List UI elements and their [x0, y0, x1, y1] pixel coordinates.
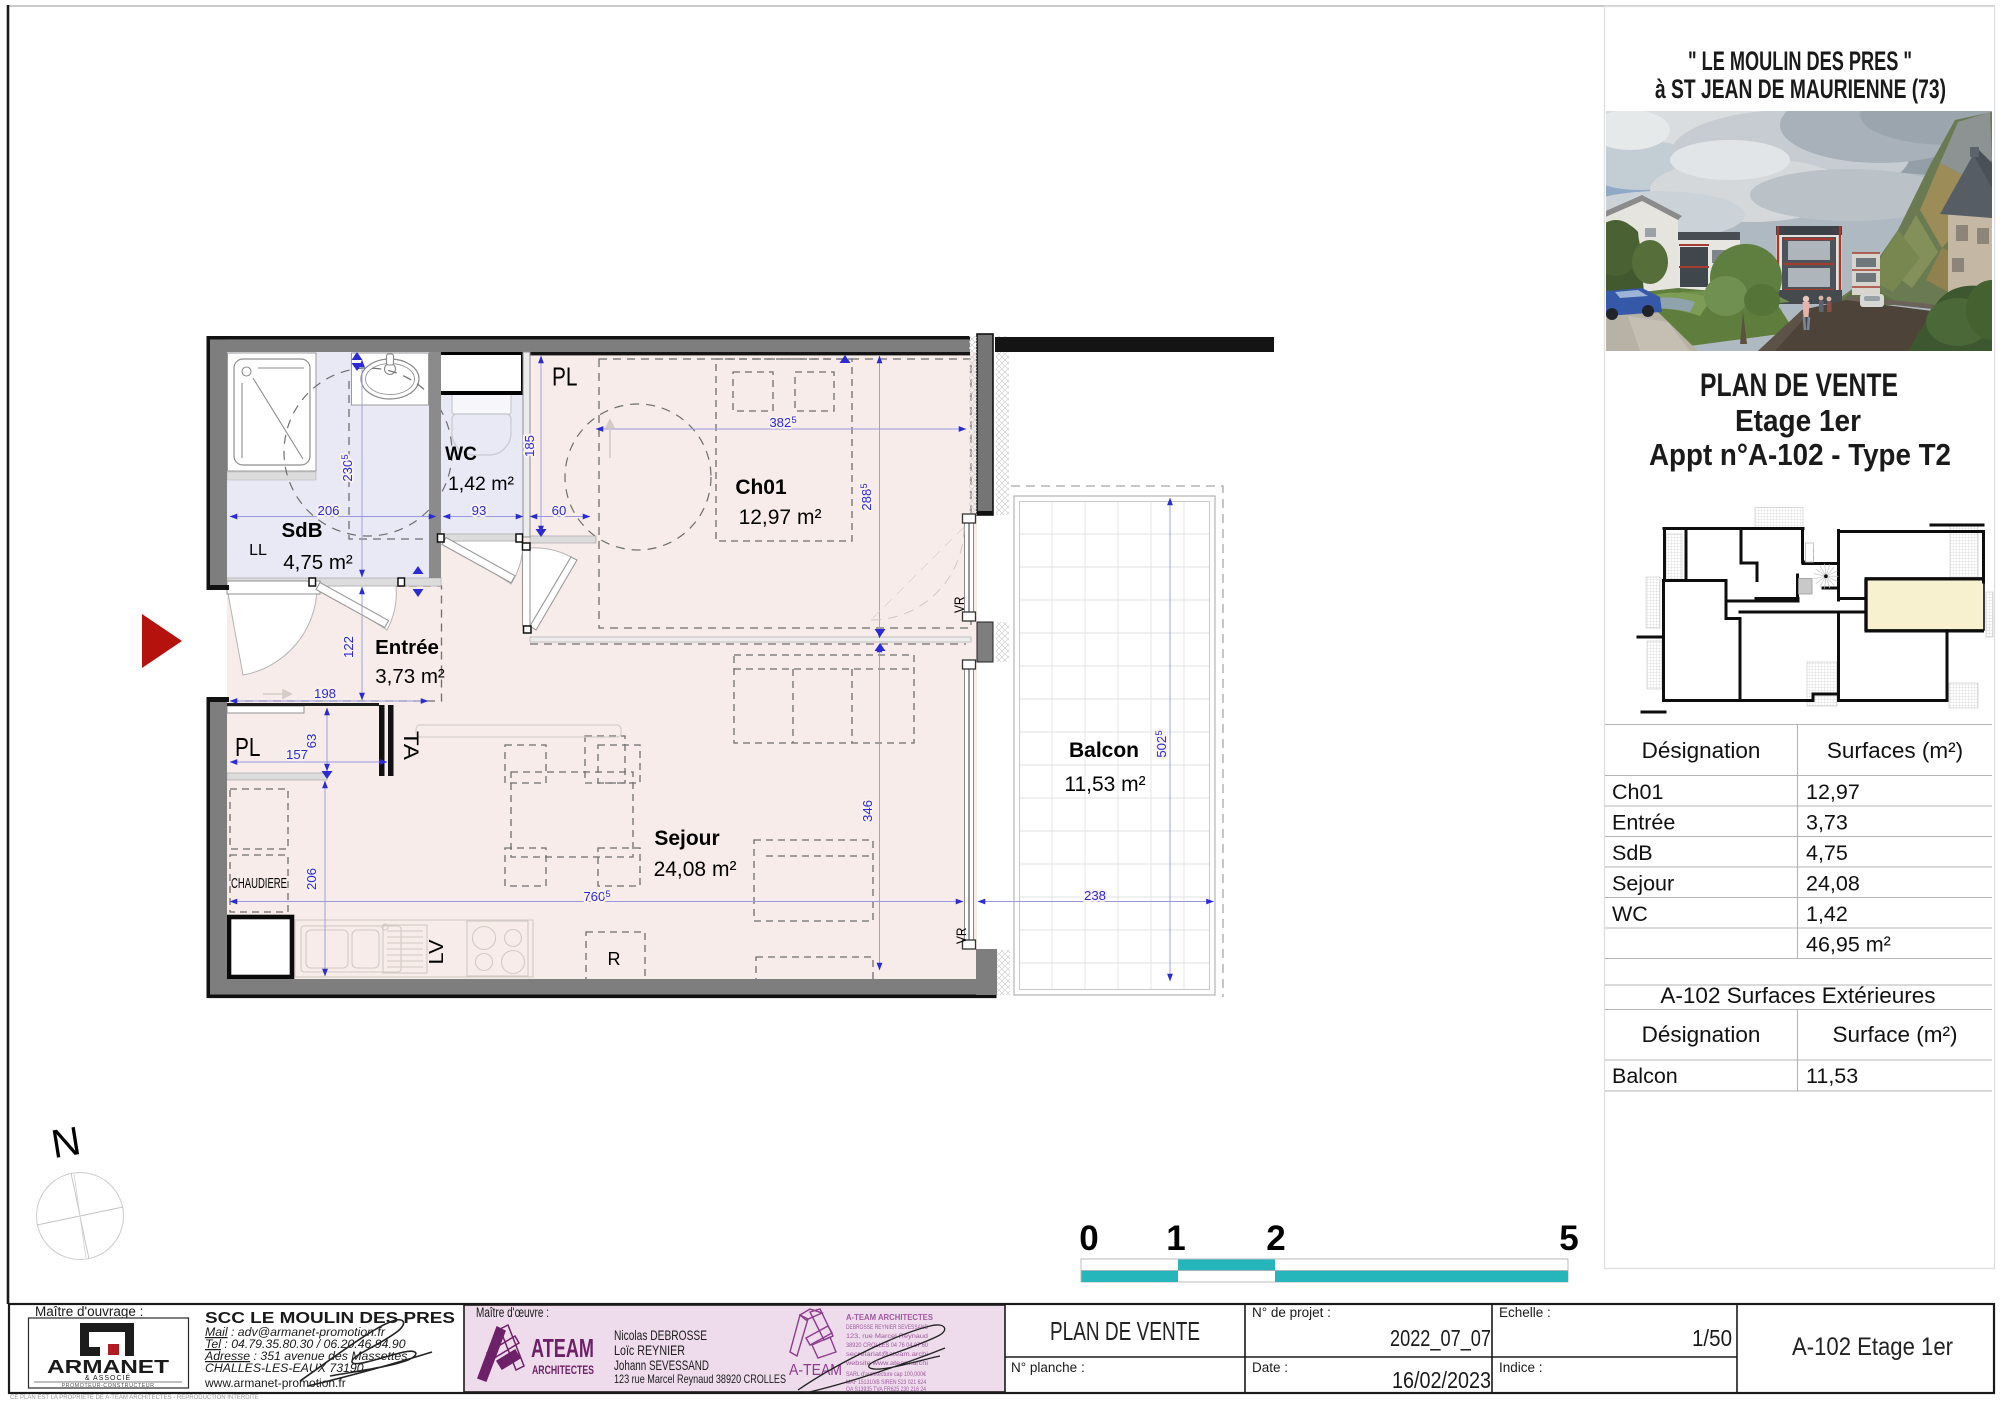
svg-text:206: 206 [304, 868, 319, 890]
svg-text:Ch01: Ch01 [735, 476, 787, 499]
svg-text:63: 63 [304, 734, 319, 749]
svg-text:WC: WC [1612, 902, 1648, 926]
svg-text:123 rue Marcel Reynaud 38920 C: 123 rue Marcel Reynaud 38920 CROLLES [614, 1372, 786, 1386]
svg-text:Maître d'œuvre :: Maître d'œuvre : [476, 1305, 549, 1320]
svg-text:SARL d'architecture cap 100,00: SARL d'architecture cap 100,000€ [846, 1371, 926, 1378]
svg-text:238: 238 [1084, 888, 1106, 903]
svg-text:24,08 m²: 24,08 m² [654, 858, 737, 881]
svg-text:ARCHITECTES: ARCHITECTES [532, 1363, 594, 1377]
svg-text:4,75: 4,75 [1806, 841, 1848, 865]
svg-text:Appt n°A-102 - Type T2: Appt n°A-102 - Type T2 [1649, 437, 1951, 472]
svg-text:Surface (m²): Surface (m²) [1832, 1022, 1957, 1047]
svg-text:Johann SEVESSAND: Johann SEVESSAND [614, 1358, 709, 1373]
svg-text:185: 185 [522, 435, 537, 457]
svg-text:A-102 Etage 1er: A-102 Etage 1er [1792, 1333, 1953, 1361]
svg-text:WC: WC [445, 444, 477, 465]
svg-text:A-102 Surfaces Extérieures: A-102 Surfaces Extérieures [1660, 983, 1935, 1008]
svg-text:2022_07_07: 2022_07_07 [1390, 1325, 1491, 1351]
svg-text:0: 0 [1079, 1219, 1098, 1258]
svg-text:12,97 m²: 12,97 m² [739, 506, 822, 529]
svg-text:ATEAM: ATEAM [531, 1333, 594, 1363]
svg-text:Désignation: Désignation [1642, 1022, 1761, 1047]
svg-text:N° planche :: N° planche : [1011, 1360, 1085, 1375]
svg-text:Sejour: Sejour [1612, 872, 1674, 896]
svg-text:198: 198 [314, 686, 336, 701]
svg-text:5: 5 [1559, 1219, 1578, 1258]
svg-text:PROMOTEUR-CONSTRUCTEUR: PROMOTEUR-CONSTRUCTEUR [61, 1383, 154, 1389]
svg-text:PL: PL [552, 362, 578, 392]
svg-text:& ASSOCIÉ: & ASSOCIÉ [85, 1373, 131, 1382]
svg-text:3,73 m²: 3,73 m² [375, 665, 445, 688]
svg-text:VR: VR [951, 597, 967, 614]
svg-text:123, rue Marcel Reynaud: 123, rue Marcel Reynaud [846, 1333, 928, 1340]
svg-text:A-TEAM: A-TEAM [789, 1362, 842, 1379]
svg-text:Loïc REYNIER: Loïc REYNIER [614, 1343, 685, 1358]
svg-text:A-TEAM ARCHITECTES: A-TEAM ARCHITECTES [846, 1313, 933, 1322]
svg-text:MAF 151310/B SIREN 523 021 624: MAF 151310/B SIREN 523 021 624 [846, 1379, 926, 1386]
svg-text:11,53 m²: 11,53 m² [1064, 773, 1145, 796]
svg-text:OA S13935 TVA FR625 230 216 24: OA S13935 TVA FR625 230 216 24 [846, 1386, 926, 1393]
svg-text:4,75 m²: 4,75 m² [283, 551, 353, 574]
svg-text:CE PLAN EST LA PROPRIETE DE A-: CE PLAN EST LA PROPRIETE DE A-TEAM ARCHI… [10, 1395, 259, 1401]
svg-text:Sejour: Sejour [654, 827, 719, 850]
svg-text:206: 206 [317, 503, 339, 518]
svg-text:PLAN DE VENTE: PLAN DE VENTE [1050, 1316, 1200, 1346]
svg-text:24,08: 24,08 [1806, 872, 1860, 896]
svg-text:PLAN DE VENTE: PLAN DE VENTE [1700, 367, 1898, 403]
svg-text:1,42 m²: 1,42 m² [448, 473, 515, 495]
svg-text:16/02/2023: 16/02/2023 [1392, 1367, 1491, 1393]
svg-text:Entrée: Entrée [375, 636, 439, 659]
svg-text:Maître d'ouvrage :: Maître d'ouvrage : [35, 1304, 143, 1319]
svg-text:Entrée: Entrée [1612, 811, 1675, 835]
svg-text:" LE MOULIN DES PRES ": " LE MOULIN DES PRES " [1688, 46, 1912, 76]
svg-text:Echelle :: Echelle : [1499, 1305, 1551, 1320]
svg-text:LL: LL [249, 542, 267, 559]
svg-text:SdB: SdB [1612, 841, 1653, 865]
svg-text:1/50: 1/50 [1692, 1325, 1732, 1351]
svg-text:LV: LV [426, 939, 448, 965]
svg-text:Surfaces (m²): Surfaces (m²) [1827, 738, 1963, 763]
svg-text:Désignation: Désignation [1642, 738, 1761, 763]
svg-text:SdB: SdB [282, 519, 323, 542]
svg-text:website www.ateam.archi: website www.ateam.archi [845, 1360, 929, 1367]
svg-text:122: 122 [341, 636, 356, 658]
svg-text:1,42: 1,42 [1806, 902, 1848, 926]
svg-text:60: 60 [552, 503, 567, 518]
svg-text:Ch01: Ch01 [1612, 780, 1663, 804]
svg-text:TA: TA [399, 731, 422, 760]
svg-text:CHAUDIERE: CHAUDIERE [231, 876, 287, 892]
svg-text:www.armanet-promotion.fr: www.armanet-promotion.fr [204, 1376, 346, 1390]
svg-text:2: 2 [1266, 1219, 1285, 1258]
svg-text:12,97: 12,97 [1806, 780, 1860, 804]
svg-text:Balcon: Balcon [1069, 739, 1139, 762]
svg-text:VR: VR [953, 928, 969, 945]
svg-text:Indice :: Indice : [1499, 1360, 1543, 1375]
svg-text:N° de projet :: N° de projet : [1252, 1305, 1331, 1320]
svg-text:1: 1 [1166, 1219, 1185, 1258]
svg-text:Balcon: Balcon [1612, 1064, 1678, 1088]
svg-text:à ST JEAN DE MAURIENNE (73): à ST JEAN DE MAURIENNE (73) [1655, 74, 1946, 104]
svg-text:PL: PL [235, 732, 261, 762]
svg-text:N: N [48, 1119, 83, 1167]
svg-text:Nicolas DEBROSSE: Nicolas DEBROSSE [614, 1328, 707, 1343]
svg-text:Date :: Date : [1252, 1360, 1288, 1375]
svg-text:93: 93 [472, 503, 487, 518]
svg-text:3,73: 3,73 [1806, 811, 1848, 835]
svg-text:46,95 m²: 46,95 m² [1806, 933, 1891, 957]
svg-text:346: 346 [860, 800, 875, 822]
svg-text:ARMANET: ARMANET [47, 1357, 169, 1377]
svg-text:Etage 1er: Etage 1er [1735, 403, 1861, 438]
svg-text:R: R [608, 949, 621, 969]
svg-text:CHALLES-LES-EAUX 73190: CHALLES-LES-EAUX 73190 [205, 1361, 364, 1375]
svg-text:11,53: 11,53 [1806, 1064, 1858, 1088]
